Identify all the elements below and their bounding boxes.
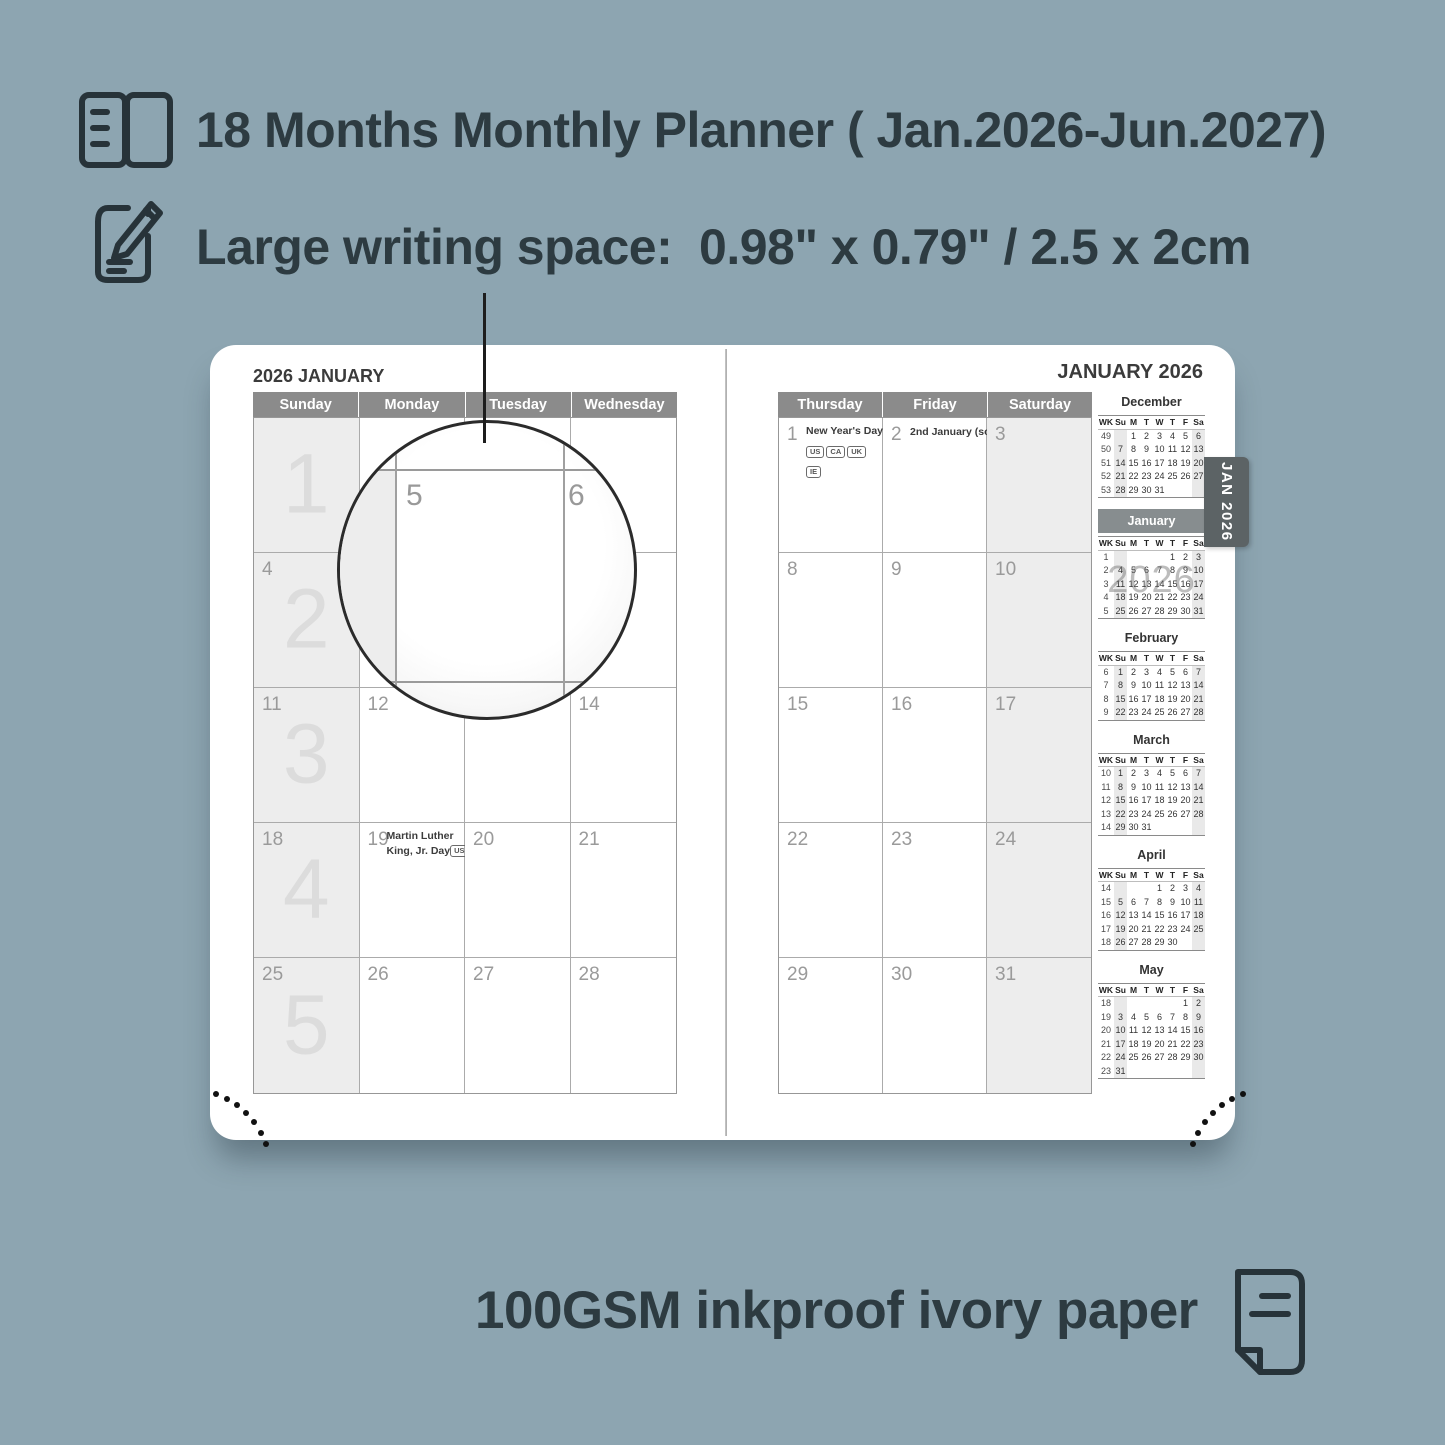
mini-calendar-title: May: [1098, 962, 1205, 981]
mini-day: 25: [1192, 923, 1205, 937]
mini-calendar-grid: WKSuMTWTFSa49123456507891011121351141516…: [1098, 415, 1205, 498]
day-header: Sunday: [253, 392, 358, 417]
mini-day: 6: [1127, 896, 1140, 910]
mini-day: 17: [1179, 909, 1192, 923]
mini-calendar-title: February: [1098, 630, 1205, 649]
mini-col-header: Sa: [1192, 984, 1205, 998]
mini-day: 30: [1127, 821, 1140, 835]
day-header: Monday: [359, 392, 464, 417]
date-cell: 27: [465, 958, 571, 1093]
mini-day: 26: [1179, 470, 1192, 484]
date-number: 4: [262, 559, 273, 581]
mini-day: 31: [1140, 821, 1153, 835]
date-number: 20: [473, 829, 494, 851]
mini-day: 30: [1166, 936, 1179, 950]
date-number: 23: [891, 829, 912, 851]
mini-col-header: WK: [1098, 652, 1114, 666]
mini-day: 29: [1127, 484, 1140, 498]
mini-calendar-title: April: [1098, 847, 1205, 866]
day-header: Wednesday: [572, 392, 677, 417]
feature-text-months: 18 Months Monthly Planner ( Jan.2026-Jun…: [196, 101, 1326, 159]
mini-day: 9: [1127, 679, 1140, 693]
mini-col-header: Sa: [1192, 652, 1205, 666]
date-cell: 8: [779, 553, 883, 688]
mini-day: 26: [1140, 1051, 1153, 1065]
mini-calendar-february: FebruaryWKSuMTWTFSa612345677891011121314…: [1098, 630, 1205, 721]
mini-day: 4: [1153, 666, 1166, 680]
mini-col-header: Su: [1114, 869, 1127, 883]
mini-week-number: 3: [1098, 578, 1114, 592]
mini-calendar-january: JanuaryWKSuMTWTFSa1123245678910311121314…: [1098, 509, 1205, 619]
mini-week-number: 49: [1098, 430, 1114, 444]
mini-day: 8: [1153, 896, 1166, 910]
date-number: 2: [891, 424, 902, 446]
mini-week-number: 16: [1098, 909, 1114, 923]
mini-day: 7: [1153, 564, 1166, 578]
mini-day: 20: [1179, 693, 1192, 707]
date-number: 27: [473, 964, 494, 986]
mini-col-header: T: [1140, 754, 1153, 768]
mini-week-number: 7: [1098, 679, 1114, 693]
date-number: 22: [787, 829, 808, 851]
mini-day: 9: [1140, 443, 1153, 457]
mini-col-header: Sa: [1192, 869, 1205, 883]
mini-col-header: F: [1179, 754, 1192, 768]
mini-day: 6: [1179, 666, 1192, 680]
date-cell: 16: [883, 688, 987, 823]
mini-day: 8: [1114, 781, 1127, 795]
mini-day: 17: [1140, 794, 1153, 808]
mini-col-header: Su: [1114, 652, 1127, 666]
mini-day: 15: [1153, 909, 1166, 923]
date-number: 12: [368, 694, 389, 716]
mini-day: 2: [1127, 767, 1140, 781]
mini-day: 3: [1114, 1011, 1127, 1025]
mini-week-number: 21: [1098, 1038, 1114, 1052]
mini-day: 3: [1179, 882, 1192, 896]
mini-day: 8: [1127, 443, 1140, 457]
mini-day: 16: [1179, 578, 1192, 592]
mini-week-number: 14: [1098, 882, 1114, 896]
mini-day: 7: [1166, 1011, 1179, 1025]
mini-calendar-april: AprilWKSuMTWTFSa141234155678910111612131…: [1098, 847, 1205, 951]
mini-col-header: M: [1127, 754, 1140, 768]
date-number: 24: [995, 829, 1016, 851]
mini-week-number: 9: [1098, 706, 1114, 720]
mini-day: 21: [1192, 794, 1205, 808]
mini-col-header: W: [1153, 537, 1166, 551]
mini-day: 16: [1127, 693, 1140, 707]
mini-day: 5: [1114, 896, 1127, 910]
mini-day: [1166, 821, 1179, 835]
mini-day: 18: [1153, 693, 1166, 707]
mini-day: 23: [1127, 808, 1140, 822]
mini-day: 6: [1192, 430, 1205, 444]
mini-col-header: T: [1140, 984, 1153, 998]
date-number: 31: [995, 964, 1016, 986]
mini-day: 1: [1114, 767, 1127, 781]
mini-day: [1153, 821, 1166, 835]
date-cell: 19Martin LutherKing, Jr. DayUS: [360, 823, 466, 958]
country-badge: IE: [806, 466, 821, 478]
mini-col-header: WK: [1098, 754, 1114, 768]
mini-day: 8: [1114, 679, 1127, 693]
mini-day: 10: [1114, 1024, 1127, 1038]
mini-col-header: T: [1166, 652, 1179, 666]
mini-day: 9: [1127, 781, 1140, 795]
mini-week-number: 17: [1098, 923, 1114, 937]
mini-day: 10: [1140, 679, 1153, 693]
mini-calendar-grid: WKSuMTWTFSa11232456789103111213141516174…: [1098, 536, 1205, 619]
mini-day: 31: [1114, 1065, 1127, 1079]
mini-day: 13: [1179, 781, 1192, 795]
mini-day: 25: [1166, 470, 1179, 484]
mini-week-number: 1: [1098, 551, 1114, 565]
mini-day: 21: [1166, 1038, 1179, 1052]
planner-spread: 2026 JANUARY SundayMondayTuesdayWednesda…: [210, 345, 1235, 1140]
mini-day: 12: [1114, 909, 1127, 923]
mini-day: 25: [1127, 1051, 1140, 1065]
mini-week-number: 18: [1098, 936, 1114, 950]
mini-day: 9: [1192, 1011, 1205, 1025]
mini-day: 4: [1127, 1011, 1140, 1025]
date-number: 26: [368, 964, 389, 986]
mini-col-header: M: [1127, 416, 1140, 430]
date-number: 17: [995, 694, 1016, 716]
mini-day: 18: [1153, 794, 1166, 808]
mini-col-header: T: [1140, 537, 1153, 551]
mini-col-header: W: [1153, 652, 1166, 666]
corner-dot: [224, 1096, 230, 1102]
mini-day: 10: [1192, 564, 1205, 578]
mini-day: 12: [1179, 443, 1192, 457]
open-book-icon: [76, 90, 176, 175]
mini-col-header: T: [1140, 869, 1153, 883]
mini-col-header: F: [1179, 416, 1192, 430]
mini-day: 11: [1153, 781, 1166, 795]
mini-day: 4: [1153, 767, 1166, 781]
mini-calendar-grid: WKSuMTWTFSa18121934567892010111213141516…: [1098, 983, 1205, 1080]
date-cell: 10: [987, 553, 1091, 688]
mini-week-number: 8: [1098, 693, 1114, 707]
mini-day: 17: [1140, 693, 1153, 707]
mini-calendar-december: DecemberWKSuMTWTFSa491234565078910111213…: [1098, 394, 1205, 498]
mini-col-header: W: [1153, 869, 1166, 883]
mini-day: 25: [1114, 605, 1127, 619]
magnified-date-5: 5: [406, 479, 423, 513]
mini-day: [1153, 1065, 1166, 1079]
mini-day: [1127, 997, 1140, 1011]
right-page-title: JANUARY 2026: [1057, 361, 1203, 384]
mini-col-header: F: [1179, 869, 1192, 883]
mini-col-header: Su: [1114, 537, 1127, 551]
date-cell: 17: [987, 688, 1091, 823]
paper-icon: [1222, 1266, 1310, 1383]
left-page-title: 2026 JANUARY: [253, 366, 384, 387]
mini-day: 7: [1192, 666, 1205, 680]
date-cell: 3: [987, 418, 1091, 553]
mini-week-number: 15: [1098, 896, 1114, 910]
mini-day: 13: [1192, 443, 1205, 457]
date-number: 21: [579, 829, 600, 851]
mini-day: 13: [1140, 578, 1153, 592]
magnifier-bubble: 5 6: [337, 420, 637, 720]
date-cell: 311: [254, 688, 360, 823]
mini-week-number: 19: [1098, 1011, 1114, 1025]
mini-day: [1179, 1065, 1192, 1079]
date-cell: 22nd January (sc.)UK: [883, 418, 987, 553]
mini-week-number: 13: [1098, 808, 1114, 822]
mini-day: 3: [1153, 430, 1166, 444]
mini-day: 11: [1127, 1024, 1140, 1038]
day-header: Tuesday: [466, 392, 571, 417]
mini-day: 28: [1192, 808, 1205, 822]
mini-day: 24: [1140, 706, 1153, 720]
mini-col-header: Su: [1114, 984, 1127, 998]
date-cell: 21: [571, 823, 677, 958]
mini-day: 24: [1179, 923, 1192, 937]
mini-day: 19: [1166, 693, 1179, 707]
mini-day: [1179, 821, 1192, 835]
mini-day: 2: [1166, 882, 1179, 896]
mini-day: 19: [1166, 794, 1179, 808]
mini-day: 14: [1192, 781, 1205, 795]
corner-dot: [258, 1130, 264, 1136]
corner-dot: [251, 1119, 257, 1125]
mini-day: 1: [1153, 882, 1166, 896]
mini-calendar-may: MayWKSuMTWTFSa18121934567892010111213141…: [1098, 962, 1205, 1080]
mini-calendar-grid: WKSuMTWTFSa14123415567891011161213141516…: [1098, 868, 1205, 951]
mini-day: [1140, 1065, 1153, 1079]
mini-day: 13: [1153, 1024, 1166, 1038]
corner-dot: [243, 1110, 249, 1116]
day-header: Thursday: [778, 392, 882, 417]
mini-col-header: M: [1127, 984, 1140, 998]
week-number-watermark: 4: [254, 846, 359, 930]
mini-day: 23: [1192, 1038, 1205, 1052]
mini-day: 19: [1140, 1038, 1153, 1052]
mini-day: 5: [1127, 564, 1140, 578]
mini-day: 15: [1127, 457, 1140, 471]
mini-day: 22: [1114, 706, 1127, 720]
mini-week-number: 6: [1098, 666, 1114, 680]
mini-day: 28: [1153, 605, 1166, 619]
mini-day: 6: [1153, 1011, 1166, 1025]
mini-day: [1192, 821, 1205, 835]
mini-day: 1: [1114, 666, 1127, 680]
date-number: 15: [787, 694, 808, 716]
mini-day: [1166, 484, 1179, 498]
mini-day: 23: [1140, 470, 1153, 484]
mini-day: 24: [1192, 591, 1205, 605]
mini-day: 8: [1179, 1011, 1192, 1025]
mini-day: 22: [1179, 1038, 1192, 1052]
mini-col-header: F: [1179, 984, 1192, 998]
date-cell: 20: [465, 823, 571, 958]
mini-day: 10: [1153, 443, 1166, 457]
mini-col-header: WK: [1098, 537, 1114, 551]
corner-dot: [1240, 1091, 1246, 1097]
mini-col-header: W: [1153, 416, 1166, 430]
mini-day: 4: [1114, 564, 1127, 578]
mini-day: 29: [1153, 936, 1166, 950]
mini-day: 28: [1114, 484, 1127, 498]
mini-day: 5: [1140, 1011, 1153, 1025]
mini-day: 23: [1166, 923, 1179, 937]
mini-day: 10: [1179, 896, 1192, 910]
mini-day: 1: [1127, 430, 1140, 444]
date-number: 10: [995, 559, 1016, 581]
date-number: 28: [579, 964, 600, 986]
mini-col-header: Su: [1114, 416, 1127, 430]
mini-day: 7: [1140, 896, 1153, 910]
date-cell: 1New Year's DayUSCAUKIE: [779, 418, 883, 553]
mini-day: 15: [1179, 1024, 1192, 1038]
date-cell: 28: [571, 958, 677, 1093]
holiday-line: Martin Luther: [387, 830, 471, 844]
mini-day: 2: [1140, 430, 1153, 444]
right-page-grid: ThursdayFridaySaturday1New Year's DayUSC…: [778, 392, 1092, 1094]
mini-day: [1140, 551, 1153, 565]
date-cell: 525: [254, 958, 360, 1093]
mini-col-header: WK: [1098, 984, 1114, 998]
mini-day: [1166, 997, 1179, 1011]
mini-col-header: Sa: [1192, 416, 1205, 430]
mini-day: 13: [1179, 679, 1192, 693]
mini-day: 23: [1127, 706, 1140, 720]
mini-week-number: 51: [1098, 457, 1114, 471]
date-number: 3: [995, 424, 1006, 446]
mini-calendar-march: MarchWKSuMTWTFSa101234567118910111213141…: [1098, 732, 1205, 836]
date-cell: 15: [779, 688, 883, 823]
mini-day: [1140, 997, 1153, 1011]
magnifier-pointer-line: [483, 293, 486, 443]
week-number-watermark: 3: [254, 711, 359, 795]
mini-col-header: W: [1153, 754, 1166, 768]
mini-day: 26: [1166, 808, 1179, 822]
corner-dot: [1210, 1110, 1216, 1116]
mini-col-header: T: [1166, 754, 1179, 768]
mini-day: 21: [1114, 470, 1127, 484]
date-cell: 14: [571, 688, 677, 823]
mini-week-number: 52: [1098, 470, 1114, 484]
pencil-note-icon: [94, 196, 168, 291]
mini-day: 1: [1166, 551, 1179, 565]
holiday-label: Martin LutherKing, Jr. DayUS: [387, 830, 471, 858]
mini-day: 18: [1166, 457, 1179, 471]
mini-day: 28: [1166, 1051, 1179, 1065]
mini-day: [1127, 882, 1140, 896]
mini-day: 14: [1166, 1024, 1179, 1038]
mini-day: 26: [1166, 706, 1179, 720]
mini-day: 20: [1127, 923, 1140, 937]
mini-day: 5: [1166, 767, 1179, 781]
mini-col-header: W: [1153, 984, 1166, 998]
mini-week-number: 10: [1098, 767, 1114, 781]
date-number: 25: [262, 964, 283, 986]
mini-week-number: 14: [1098, 821, 1114, 835]
mini-week-number: 20: [1098, 1024, 1114, 1038]
mini-day: 14: [1140, 909, 1153, 923]
magnified-date-6: 6: [568, 479, 585, 513]
mini-day: 25: [1153, 808, 1166, 822]
magnified-grid-line: [395, 423, 397, 717]
country-badge: UK: [847, 446, 866, 458]
magnified-sunday-shade: [340, 471, 395, 681]
mini-day: 23: [1179, 591, 1192, 605]
mini-day: 15: [1114, 794, 1127, 808]
date-cell: 418: [254, 823, 360, 958]
mini-day: 27: [1140, 605, 1153, 619]
mini-day: 26: [1127, 605, 1140, 619]
mini-day: 5: [1179, 430, 1192, 444]
day-header: Friday: [883, 392, 987, 417]
mini-day: 9: [1166, 896, 1179, 910]
mini-day: [1192, 936, 1205, 950]
mini-day: 19: [1127, 591, 1140, 605]
mini-day: [1114, 997, 1127, 1011]
mini-day: 28: [1192, 706, 1205, 720]
mini-day: 12: [1140, 1024, 1153, 1038]
mini-day: [1114, 551, 1127, 565]
date-number: 11: [262, 694, 282, 716]
mini-col-header: T: [1166, 416, 1179, 430]
month-tab-jan-2026: JAN 2026: [1204, 457, 1249, 547]
footer-text-paper: 100GSM inkproof ivory paper: [475, 1280, 1198, 1341]
mini-day: 13: [1127, 909, 1140, 923]
mini-week-number: 53: [1098, 484, 1114, 498]
mini-day: [1114, 882, 1127, 896]
mini-calendar-sidebar: DecemberWKSuMTWTFSa491234565078910111213…: [1098, 394, 1205, 1090]
holiday-line: New Year's Day: [806, 425, 883, 439]
mini-week-number: 5: [1098, 605, 1114, 619]
mini-day: 14: [1192, 679, 1205, 693]
mini-calendar-grid: WKSuMTWTFSa61234567789101112131481516171…: [1098, 651, 1205, 721]
mini-col-header: T: [1166, 537, 1179, 551]
holiday-line: King, Jr. DayUS: [387, 844, 471, 859]
mini-day: 18: [1192, 909, 1205, 923]
mini-day: 14: [1114, 457, 1127, 471]
mini-col-header: M: [1127, 537, 1140, 551]
feature-text-writing-space: Large writing space: 0.98" x 0.79" / 2.5…: [196, 218, 1251, 276]
mini-day: 17: [1153, 457, 1166, 471]
mini-day: 3: [1140, 666, 1153, 680]
mini-col-header: T: [1166, 984, 1179, 998]
corner-dot: [1219, 1102, 1225, 1108]
mini-day: 16: [1166, 909, 1179, 923]
mini-day: 28: [1140, 936, 1153, 950]
mini-day: 20: [1153, 1038, 1166, 1052]
mini-col-header: T: [1166, 869, 1179, 883]
mini-day: [1140, 882, 1153, 896]
day-header-row: SundayMondayTuesdayWednesday: [253, 392, 677, 417]
product-image-canvas: { "colors": { "background": "#8da5b1", "…: [0, 0, 1445, 1445]
mini-day: 27: [1179, 808, 1192, 822]
mini-day: 2: [1127, 666, 1140, 680]
mini-day: 15: [1114, 693, 1127, 707]
date-cell: 23: [883, 823, 987, 958]
mini-day: 22: [1166, 591, 1179, 605]
mini-week-number: 18: [1098, 997, 1114, 1011]
mini-calendar-title: December: [1098, 394, 1205, 413]
date-number: 29: [787, 964, 808, 986]
mini-week-number: 50: [1098, 443, 1114, 457]
date-number: 9: [891, 559, 902, 581]
mini-day: [1166, 1065, 1179, 1079]
date-number: 30: [891, 964, 912, 986]
mini-day: [1179, 936, 1192, 950]
mini-week-number: 23: [1098, 1065, 1114, 1079]
